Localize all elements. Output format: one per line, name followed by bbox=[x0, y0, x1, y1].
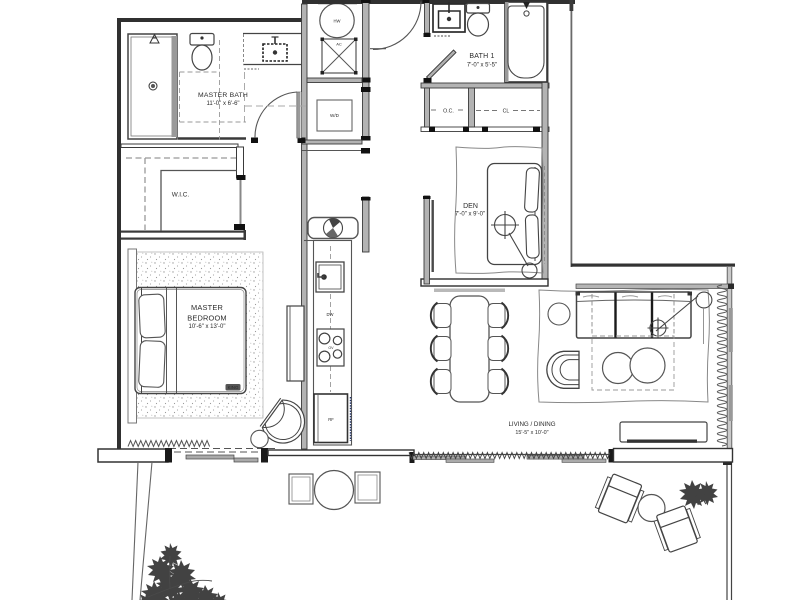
svg-text:W.I.C.: W.I.C. bbox=[172, 192, 190, 199]
svg-text:O.C.: O.C. bbox=[443, 109, 454, 115]
svg-text:11'-0" x 6'-6": 11'-0" x 6'-6" bbox=[206, 101, 239, 107]
svg-text:7'-0" x 9'-0": 7'-0" x 9'-0" bbox=[455, 212, 485, 218]
svg-text:7'-0" x 5'-5": 7'-0" x 5'-5" bbox=[467, 63, 497, 69]
svg-text:15'-5" x 10'-0": 15'-5" x 10'-0" bbox=[515, 430, 548, 436]
svg-text:HW: HW bbox=[334, 19, 341, 24]
svg-text:DW: DW bbox=[327, 312, 334, 317]
svg-text:LIVING / DINING: LIVING / DINING bbox=[508, 421, 555, 428]
svg-text:BATH 1: BATH 1 bbox=[469, 53, 494, 60]
svg-text:DEN: DEN bbox=[463, 203, 478, 210]
svg-text:BEDROOM: BEDROOM bbox=[187, 314, 227, 323]
svg-text:MASTER: MASTER bbox=[191, 303, 223, 312]
svg-text:10'-6" x 13'-0": 10'-6" x 13'-0" bbox=[189, 324, 226, 330]
svg-text:MASTER BATH: MASTER BATH bbox=[198, 92, 248, 99]
svg-text:AC: AC bbox=[336, 42, 342, 47]
svg-text:CL: CL bbox=[503, 109, 510, 115]
svg-text:KING: KING bbox=[228, 385, 239, 390]
svg-text:W/D: W/D bbox=[330, 113, 340, 118]
svg-text:OV: OV bbox=[328, 346, 334, 350]
svg-text:RF: RF bbox=[328, 417, 334, 422]
